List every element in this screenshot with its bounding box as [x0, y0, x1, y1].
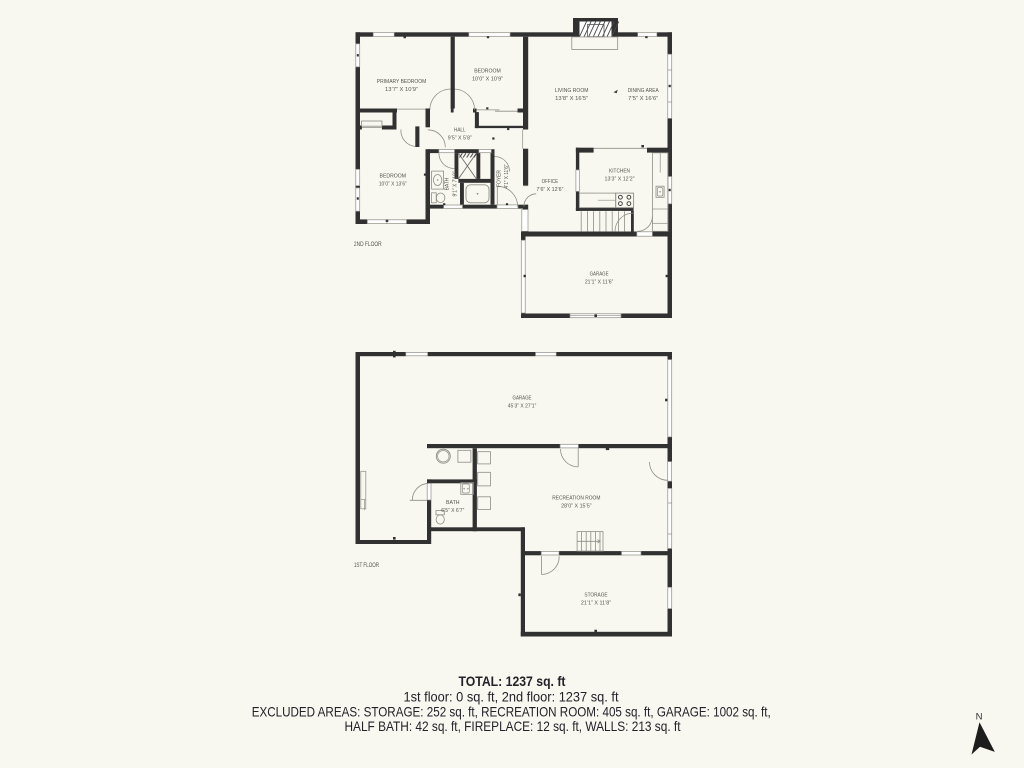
svg-text:PRIMARY BEDROOM: PRIMARY BEDROOM — [377, 79, 427, 85]
svg-text:BATH: BATH — [446, 500, 460, 506]
svg-text:6’5” X 6’7”: 6’5” X 6’7” — [441, 508, 464, 514]
svg-text:TOTAL: 1237 sq. ft: TOTAL: 1237 sq. ft — [459, 674, 566, 690]
svg-text:45’3” X 27’1”: 45’3” X 27’1” — [508, 404, 537, 410]
svg-text:10’0” X 10’9”: 10’0” X 10’9” — [472, 77, 503, 83]
svg-text:21’1” X 11’6”: 21’1” X 11’6” — [585, 280, 614, 286]
svg-text:STORAGE: STORAGE — [584, 593, 607, 599]
svg-text:9’1” X 7’10”: 9’1” X 7’10” — [453, 171, 459, 196]
svg-text:BEDROOM: BEDROOM — [474, 69, 501, 75]
svg-text:RECREATION ROOM: RECREATION ROOM — [552, 496, 600, 502]
svg-text:BEDROOM: BEDROOM — [380, 174, 407, 180]
svg-text:1ST FLOOR: 1ST FLOOR — [354, 563, 380, 569]
svg-text:13’7” X 10’9”: 13’7” X 10’9” — [385, 87, 418, 93]
svg-text:EXCLUDED AREAS: STORAGE: 252 s: EXCLUDED AREAS: STORAGE: 252 sq. ft, REC… — [252, 704, 771, 719]
svg-text:GARAGE: GARAGE — [590, 272, 609, 278]
svg-text:7’5” X 16’6”: 7’5” X 16’6” — [628, 96, 658, 102]
svg-text:21’1” X 11’8”: 21’1” X 11’8” — [581, 601, 611, 607]
svg-text:HALF BATH: 42 sq. ft, FIREPLAC: HALF BATH: 42 sq. ft, FIREPLACE: 12 sq. … — [345, 719, 681, 734]
svg-text:1st floor: 0 sq. ft, 2nd floor: 1st floor: 0 sq. ft, 2nd floor: 1237 sq.… — [404, 690, 619, 705]
svg-text:DINING AREA: DINING AREA — [628, 88, 659, 94]
svg-text:N: N — [976, 712, 983, 723]
svg-text:13’8” X 16’5”: 13’8” X 16’5” — [555, 96, 588, 102]
svg-text:BATH: BATH — [445, 178, 451, 191]
svg-text:9’5” X 5’8”: 9’5” X 5’8” — [448, 136, 472, 142]
svg-text:FOYER: FOYER — [497, 170, 503, 187]
svg-text:13’3” X 12’2”: 13’3” X 12’2” — [605, 176, 635, 182]
svg-text:+ +: + + — [463, 487, 470, 492]
svg-text:OFFICE: OFFICE — [542, 179, 559, 185]
svg-text:KITCHEN: KITCHEN — [609, 168, 630, 174]
svg-text:10’0” X 13’6”: 10’0” X 13’6” — [379, 182, 407, 188]
svg-text:7’6” X 12’6”: 7’6” X 12’6” — [536, 187, 563, 193]
svg-text:2ND FLOOR: 2ND FLOOR — [354, 242, 382, 248]
svg-text:4’1” X 11’6”: 4’1” X 11’6” — [504, 164, 510, 188]
svg-text:GARAGE: GARAGE — [513, 396, 532, 402]
svg-text:HALL: HALL — [454, 128, 466, 134]
svg-text:LIVING ROOM: LIVING ROOM — [555, 88, 589, 94]
svg-text:28’0” X 15’5”: 28’0” X 15’5” — [561, 504, 592, 510]
